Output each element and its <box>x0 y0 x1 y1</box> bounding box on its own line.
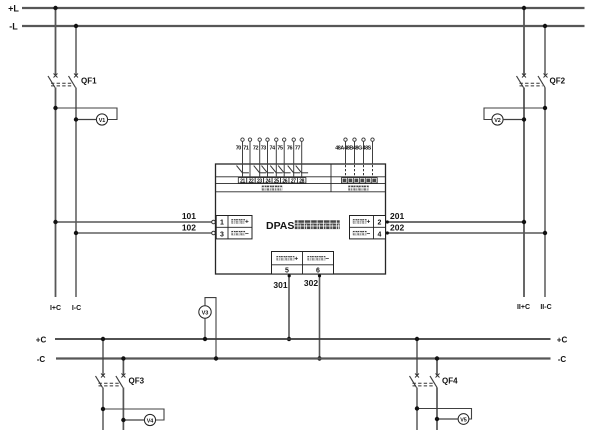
svg-text:+: + <box>294 255 298 262</box>
svg-text:I+C: I+C <box>50 305 61 312</box>
svg-text:48S: 48S <box>362 146 371 152</box>
svg-text:101: 101 <box>182 211 196 221</box>
svg-text:201: 201 <box>390 211 404 221</box>
svg-text:II-C: II-C <box>540 304 551 311</box>
svg-text:QF4: QF4 <box>442 377 458 386</box>
svg-text:V2: V2 <box>494 118 501 124</box>
svg-text:−: − <box>245 230 249 237</box>
svg-text:48G: 48G <box>353 146 362 152</box>
svg-text:302: 302 <box>304 278 318 288</box>
svg-text:+: + <box>366 218 370 225</box>
svg-text:+: + <box>245 218 249 225</box>
svg-text:+C: +C <box>36 336 47 345</box>
svg-text:301: 301 <box>273 280 287 290</box>
svg-text:202: 202 <box>390 223 404 233</box>
svg-text:70: 70 <box>236 146 242 152</box>
svg-text:71: 71 <box>243 146 249 152</box>
svg-text:+C: +C <box>557 336 568 345</box>
svg-text:V3: V3 <box>202 311 209 317</box>
svg-text:22: 22 <box>249 178 254 184</box>
svg-text:V5: V5 <box>460 418 467 424</box>
svg-text:21: 21 <box>240 178 245 184</box>
svg-text:102: 102 <box>182 223 196 233</box>
svg-text:25: 25 <box>274 178 279 184</box>
svg-text:73: 73 <box>261 146 267 152</box>
svg-text:2: 2 <box>378 220 382 227</box>
svg-text:74: 74 <box>269 146 275 152</box>
svg-text:27: 27 <box>291 178 296 184</box>
svg-text:3: 3 <box>220 231 224 238</box>
svg-text:V4: V4 <box>147 419 154 425</box>
svg-text:-L: -L <box>9 22 18 32</box>
svg-text:4: 4 <box>378 231 382 238</box>
svg-text:−: − <box>366 230 370 237</box>
svg-text:QF1: QF1 <box>81 77 97 86</box>
svg-text:-C: -C <box>37 355 46 364</box>
svg-text:1: 1 <box>220 220 224 227</box>
svg-text:26: 26 <box>282 178 287 184</box>
svg-text:+L: +L <box>8 4 19 14</box>
svg-text:QF3: QF3 <box>129 377 145 386</box>
svg-text:II+C: II+C <box>517 304 530 311</box>
svg-text:28: 28 <box>299 178 304 184</box>
svg-text:V1: V1 <box>99 118 106 124</box>
svg-text:24: 24 <box>265 178 270 184</box>
svg-text:5: 5 <box>285 268 289 275</box>
svg-text:DPAS: DPAS <box>266 220 294 232</box>
svg-text:23: 23 <box>257 178 262 184</box>
svg-text:72: 72 <box>253 146 259 152</box>
svg-text:76: 76 <box>287 146 293 152</box>
svg-text:QF2: QF2 <box>550 77 566 86</box>
svg-text:77: 77 <box>295 146 301 152</box>
svg-text:−: − <box>325 255 329 262</box>
svg-text:-C: -C <box>558 355 567 364</box>
svg-text:48A: 48A <box>335 146 344 152</box>
svg-text:6: 6 <box>316 268 320 275</box>
svg-text:75: 75 <box>277 146 283 152</box>
svg-text:I-C: I-C <box>72 305 81 312</box>
